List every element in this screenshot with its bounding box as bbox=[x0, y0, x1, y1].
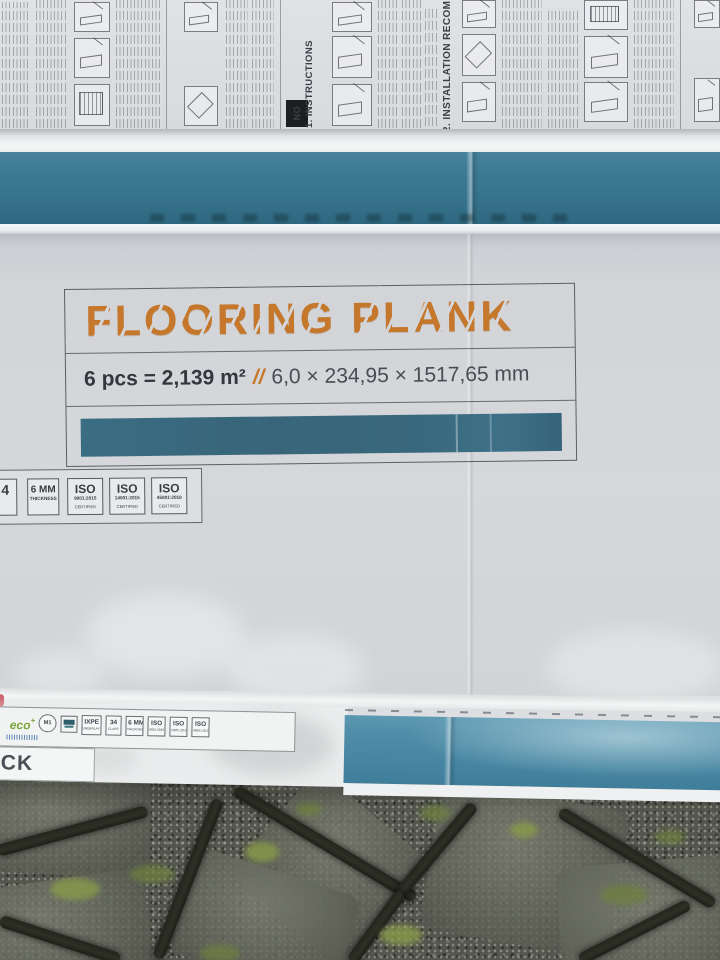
plank-dimensions: 6,0 × 234,95 × 1517,65 mm bbox=[271, 362, 529, 389]
ixpe-badge: IXPE UNDERLAY bbox=[81, 715, 101, 735]
swatch-scuff bbox=[489, 414, 491, 452]
instruction-diagram bbox=[184, 86, 218, 126]
print-divider bbox=[166, 0, 167, 132]
torn-edge-shadow bbox=[150, 214, 580, 222]
spec-separator: // bbox=[253, 366, 265, 390]
instruction-diagram bbox=[462, 34, 496, 76]
eco-fine-print bbox=[6, 735, 38, 741]
underlay-pad-badge bbox=[60, 716, 77, 733]
instruction-diagram bbox=[694, 0, 720, 28]
instruction-diagram bbox=[332, 36, 372, 78]
color-swatch-row bbox=[66, 400, 576, 466]
moss-patch bbox=[380, 925, 422, 945]
partial-word: CK bbox=[1, 751, 34, 776]
pieces-coverage: 6 pcs = 2,139 m² bbox=[84, 366, 246, 392]
m1-emission-badge: M1 bbox=[38, 714, 56, 732]
fine-print-column bbox=[252, 0, 274, 128]
cardboard-fold bbox=[0, 224, 720, 234]
box-bottom-flap: eco+ M1 IXPE UNDERLAY 34 CLASS bbox=[0, 700, 720, 811]
thickness-mini-badge: 6 MM THICKNESS bbox=[125, 716, 143, 736]
paver-stone bbox=[555, 852, 720, 960]
cardboard-crease bbox=[443, 717, 456, 785]
swatch-scuff bbox=[456, 414, 458, 452]
fine-print-column bbox=[226, 0, 248, 128]
fine-print-column bbox=[634, 0, 674, 128]
instruction-diagram bbox=[74, 38, 110, 78]
product-spec-row: 6 pcs = 2,139 m² // 6,0 × 234,95 × 1517,… bbox=[66, 347, 576, 406]
moss-patch bbox=[655, 830, 685, 844]
iso-9001-badge: ISO 9001:2015 CERTIFIED bbox=[67, 478, 103, 515]
mini-badge-strip: eco+ M1 IXPE UNDERLAY 34 CLASS bbox=[0, 706, 296, 752]
language-label: NO bbox=[292, 106, 302, 120]
instruction-diagram bbox=[332, 2, 372, 32]
fine-print-column bbox=[502, 0, 542, 128]
stain bbox=[545, 629, 720, 704]
instruction-diagram bbox=[332, 84, 372, 126]
cardboard-fold bbox=[0, 129, 720, 152]
fine-print-column bbox=[36, 0, 66, 128]
installation-heading: 2. INSTALLATION RECOMMEN bbox=[442, 0, 453, 132]
instruction-diagram bbox=[462, 82, 496, 122]
class-34-badge: 34 CLASS bbox=[105, 715, 121, 735]
instruction-diagram bbox=[584, 0, 628, 30]
instruction-diagram bbox=[694, 78, 720, 122]
wear-class-badge: 4 bbox=[0, 479, 17, 516]
moss-patch bbox=[130, 865, 174, 883]
fine-print-column bbox=[116, 0, 160, 128]
instructions-heading: 1. INSTRUCTIONS bbox=[304, 48, 315, 128]
fine-print-column bbox=[2, 2, 28, 128]
moss-patch bbox=[200, 945, 240, 960]
color-swatch-bar bbox=[81, 413, 562, 457]
iso-45001-badge: ISO 45001:2018 CERTIFIED bbox=[151, 477, 187, 514]
stain bbox=[85, 594, 245, 679]
box-front-face: FLOORING PLANK 6 pcs = 2,139 m² // 6,0 ×… bbox=[0, 234, 720, 696]
teal-band-top bbox=[0, 152, 720, 224]
product-info-panel: FLOORING PLANK 6 pcs = 2,139 m² // 6,0 ×… bbox=[64, 283, 577, 467]
print-divider bbox=[680, 0, 681, 132]
product-title-row: FLOORING PLANK bbox=[65, 284, 575, 353]
instruction-diagram bbox=[462, 0, 496, 28]
fine-print-column bbox=[402, 0, 422, 128]
flooring-plank-box-photo: NO 1. INSTRUCTIONS 2. INSTALLATION RECOM… bbox=[0, 0, 720, 960]
product-title: FLOORING PLANK bbox=[85, 293, 515, 347]
partial-word-box: CK bbox=[0, 746, 95, 782]
bottom-flap-left: eco+ M1 IXPE UNDERLAY 34 CLASS bbox=[0, 700, 348, 787]
instruction-diagram bbox=[584, 82, 628, 122]
fine-print-column bbox=[425, 8, 438, 126]
moss-patch bbox=[50, 878, 100, 900]
eco-plus-logo: eco+ bbox=[6, 716, 38, 739]
fine-print-column bbox=[378, 0, 398, 128]
instruction-diagram bbox=[584, 36, 628, 78]
thickness-badge: 6 MM THICKNESS bbox=[27, 478, 59, 515]
iso-14001-badge: ISO 14001:2015 CERTIFIED bbox=[109, 477, 145, 514]
teal-band-bottom bbox=[343, 715, 720, 791]
instruction-diagram bbox=[74, 2, 110, 32]
iso-45001-mini-badge: ISO 45001:2018 bbox=[191, 717, 209, 737]
moss-patch bbox=[510, 822, 538, 838]
instruction-print-area: NO 1. INSTRUCTIONS 2. INSTALLATION RECOM… bbox=[0, 0, 720, 132]
moss-patch bbox=[245, 842, 279, 862]
fine-print-column bbox=[548, 8, 578, 128]
iso-9001-mini-badge: ISO 9001:2015 bbox=[147, 716, 165, 736]
print-divider bbox=[280, 0, 281, 132]
iso-14001-mini-badge: ISO 14001:2015 bbox=[169, 717, 187, 737]
water-stain bbox=[343, 715, 720, 791]
red-mark bbox=[0, 694, 4, 706]
instruction-diagram bbox=[74, 84, 110, 126]
moss-patch bbox=[600, 885, 648, 905]
certification-badge-strip: 4 6 MM THICKNESS ISO 9001:2015 CERTIFIED… bbox=[0, 468, 202, 525]
instruction-diagram bbox=[184, 2, 218, 32]
